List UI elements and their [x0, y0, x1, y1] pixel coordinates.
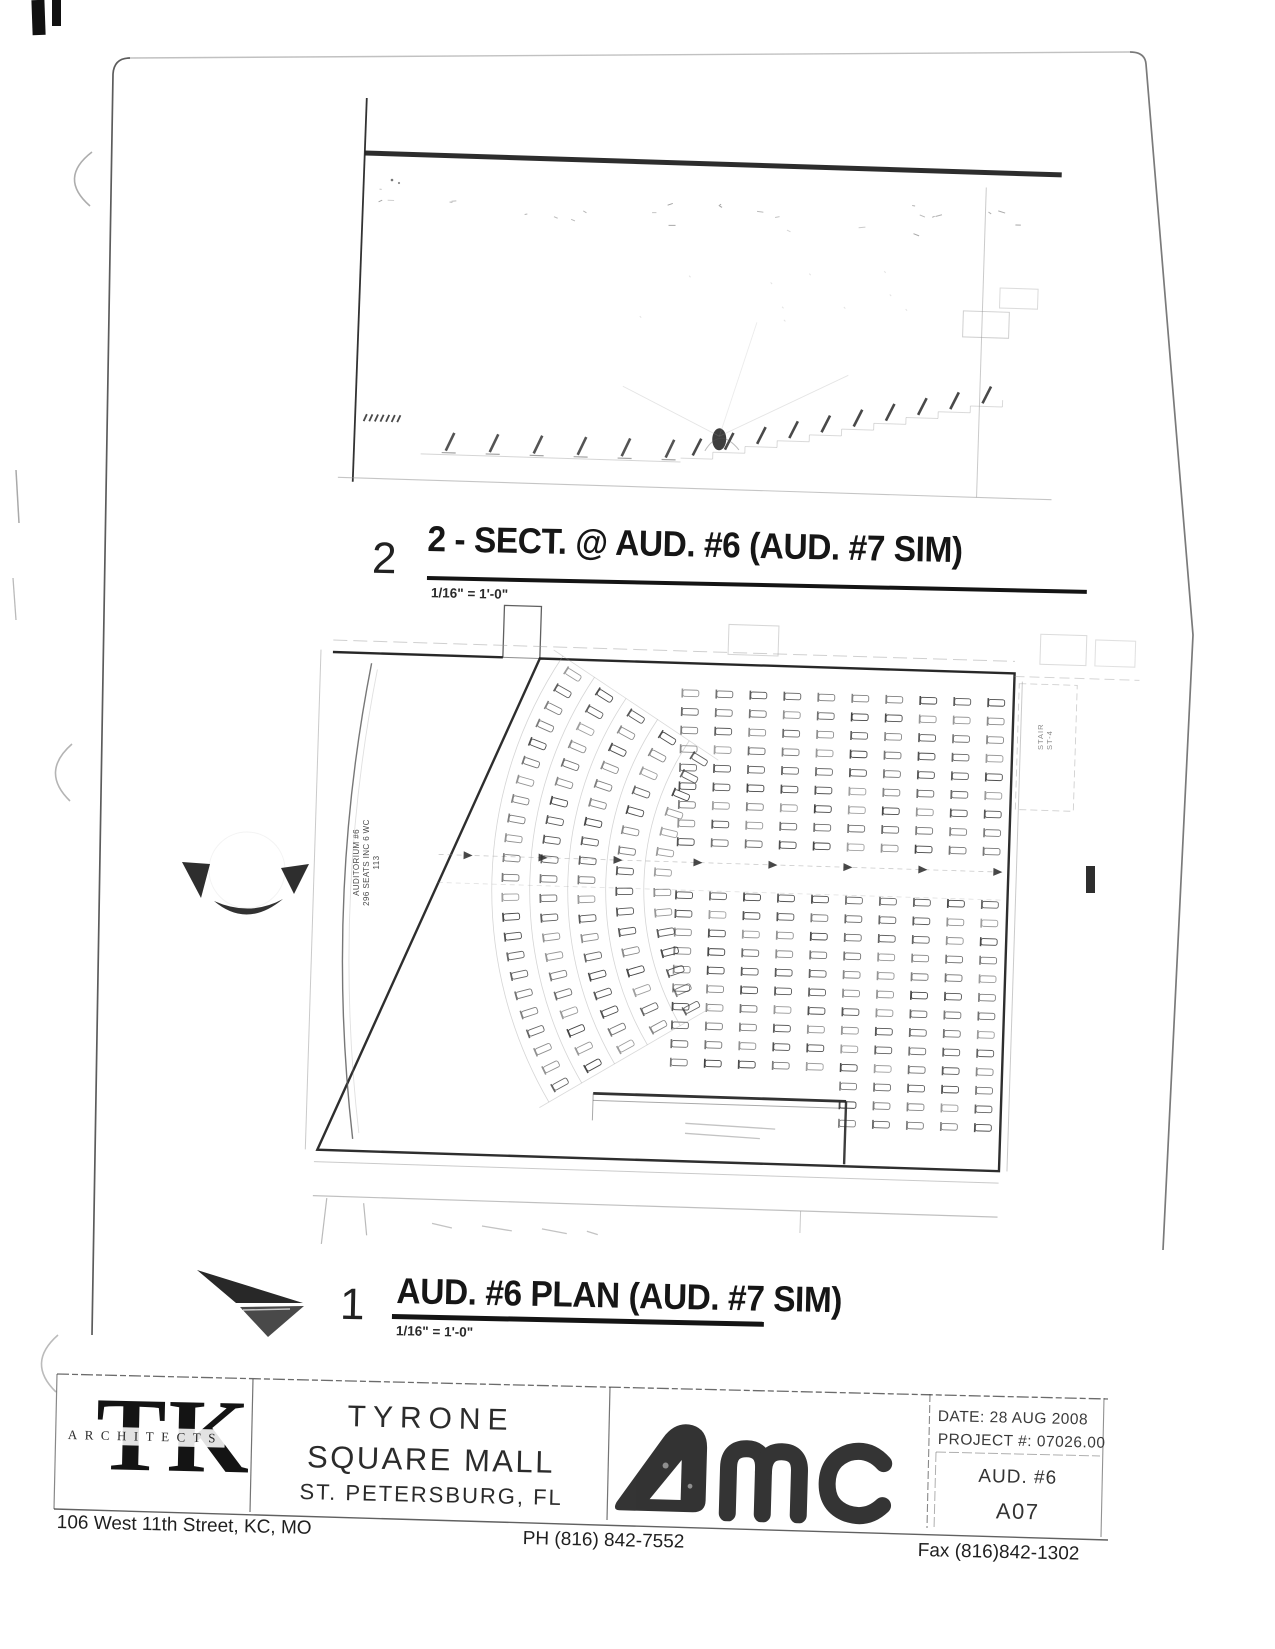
- stair-annotation: STAIR ST-4: [1036, 690, 1054, 750]
- auditorium-name: AUDITORIUM #6: [352, 815, 362, 910]
- architect-fax: Fax (816)842-1302: [918, 1540, 1080, 1566]
- sheet-number: A07: [937, 1497, 1098, 1527]
- sheet-project-number: PROJECT #: 07026.00: [938, 1431, 1106, 1453]
- auditorium-room-number: 113: [372, 815, 382, 910]
- sheet-title: AUD. #6: [938, 1465, 1098, 1491]
- scanned-drawing-sheet: 2 2 - SECT. @ AUD. #6 (AUD. #7 SIM) 1/16…: [0, 0, 1275, 1649]
- architect-phone: PH (816) 842-7552: [523, 1528, 685, 1554]
- stair-label: STAIR: [1036, 690, 1045, 750]
- plan-view-scale: 1/16" = 1'-0": [396, 1323, 473, 1340]
- sheet-date: DATE: 28 AUG 2008: [938, 1408, 1089, 1429]
- stair-id: ST-4: [1045, 690, 1054, 750]
- auditorium-seat-count: 296 SEATS INC 6 WC: [362, 815, 372, 910]
- amc-logo: [609, 1414, 912, 1526]
- architect-logo-name: ARCHITECTS: [66, 1426, 226, 1448]
- section-view-number: 2: [371, 534, 397, 585]
- plan-view-number: 1: [339, 1280, 365, 1331]
- section-view-scale: 1/16" = 1'-0": [431, 585, 508, 602]
- auditorium-annotation: AUDITORIUM #6 296 SEATS INC 6 WC 113: [352, 815, 382, 910]
